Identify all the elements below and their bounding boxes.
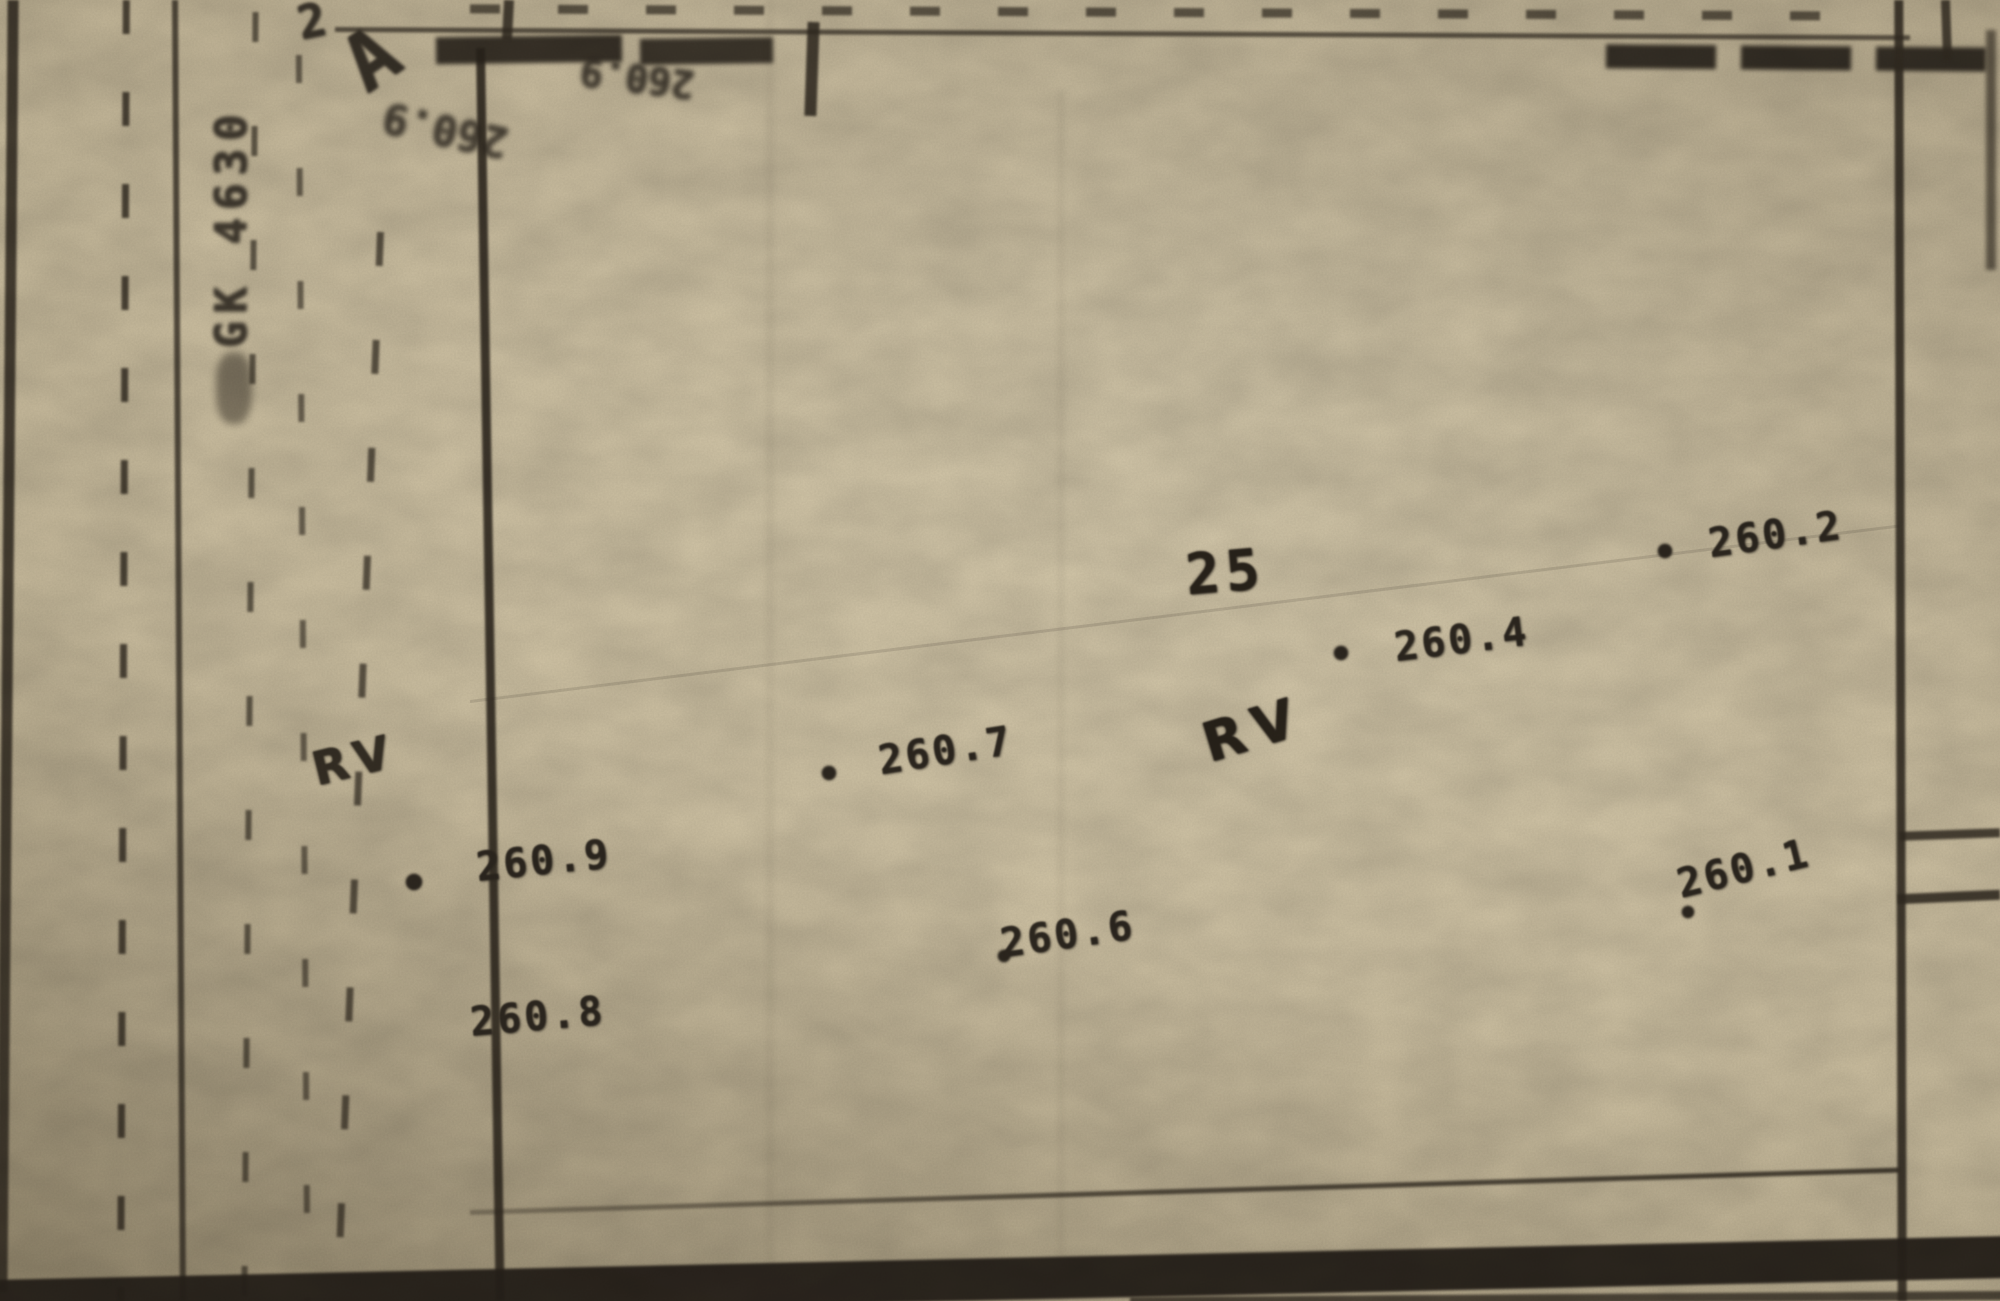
paper-crease-1 — [766, 0, 774, 1301]
ink-smudge — [216, 352, 252, 424]
east-stub-upper — [1900, 828, 2000, 840]
north-tick-mark — [502, 0, 514, 40]
paper-crease-2 — [1058, 90, 1064, 1301]
elevation-dot — [1658, 544, 1672, 558]
elevation-label: 260.7 — [875, 718, 1016, 785]
cadastral-map: 25 RV RV A 2 GK 4630 260.9 260.9 260.226… — [0, 0, 2000, 1301]
elevation-dot — [1334, 646, 1348, 660]
margin-vertical-text: GK 4630 — [206, 107, 257, 348]
elevation-label: 260.6 — [997, 903, 1138, 967]
rv-label-center: RV — [1195, 684, 1312, 774]
road-dashed-line-3 — [295, 0, 310, 1301]
elevation-label: 260.1 — [1672, 830, 1815, 907]
east-edge-segment — [1986, 30, 1996, 270]
parcel-west-boundary — [476, 48, 505, 1301]
parcel-number-label: 25 — [1183, 537, 1268, 609]
parcel-east-boundary — [1894, 0, 1906, 1301]
south-boundary-band — [0, 1236, 2000, 1301]
rv-label-road: RV — [307, 724, 403, 797]
elevation-label: 260.4 — [1392, 609, 1532, 671]
parcel-south-inner-line — [470, 1168, 1900, 1215]
elevation-dot — [1682, 906, 1694, 918]
road-dashed-line-1 — [117, 0, 130, 1301]
road-inner-line — [172, 0, 186, 1301]
building-band-east — [1606, 44, 2000, 71]
north-boundary-ticks — [470, 4, 1870, 20]
east-boundary-tick — [1941, 0, 1952, 60]
north-corner-stub — [804, 22, 819, 116]
smudged-elevation-lower: 260.9 — [378, 93, 512, 167]
margin-letter-a: A — [326, 9, 416, 110]
elevation-dot — [406, 874, 422, 890]
elevation-label: 260.2 — [1705, 503, 1846, 567]
east-stub-lower — [1898, 890, 2000, 904]
elevation-dot — [822, 766, 836, 780]
road-left-edge-line — [0, 0, 19, 1292]
elevation-label: 260.8 — [468, 988, 607, 1046]
